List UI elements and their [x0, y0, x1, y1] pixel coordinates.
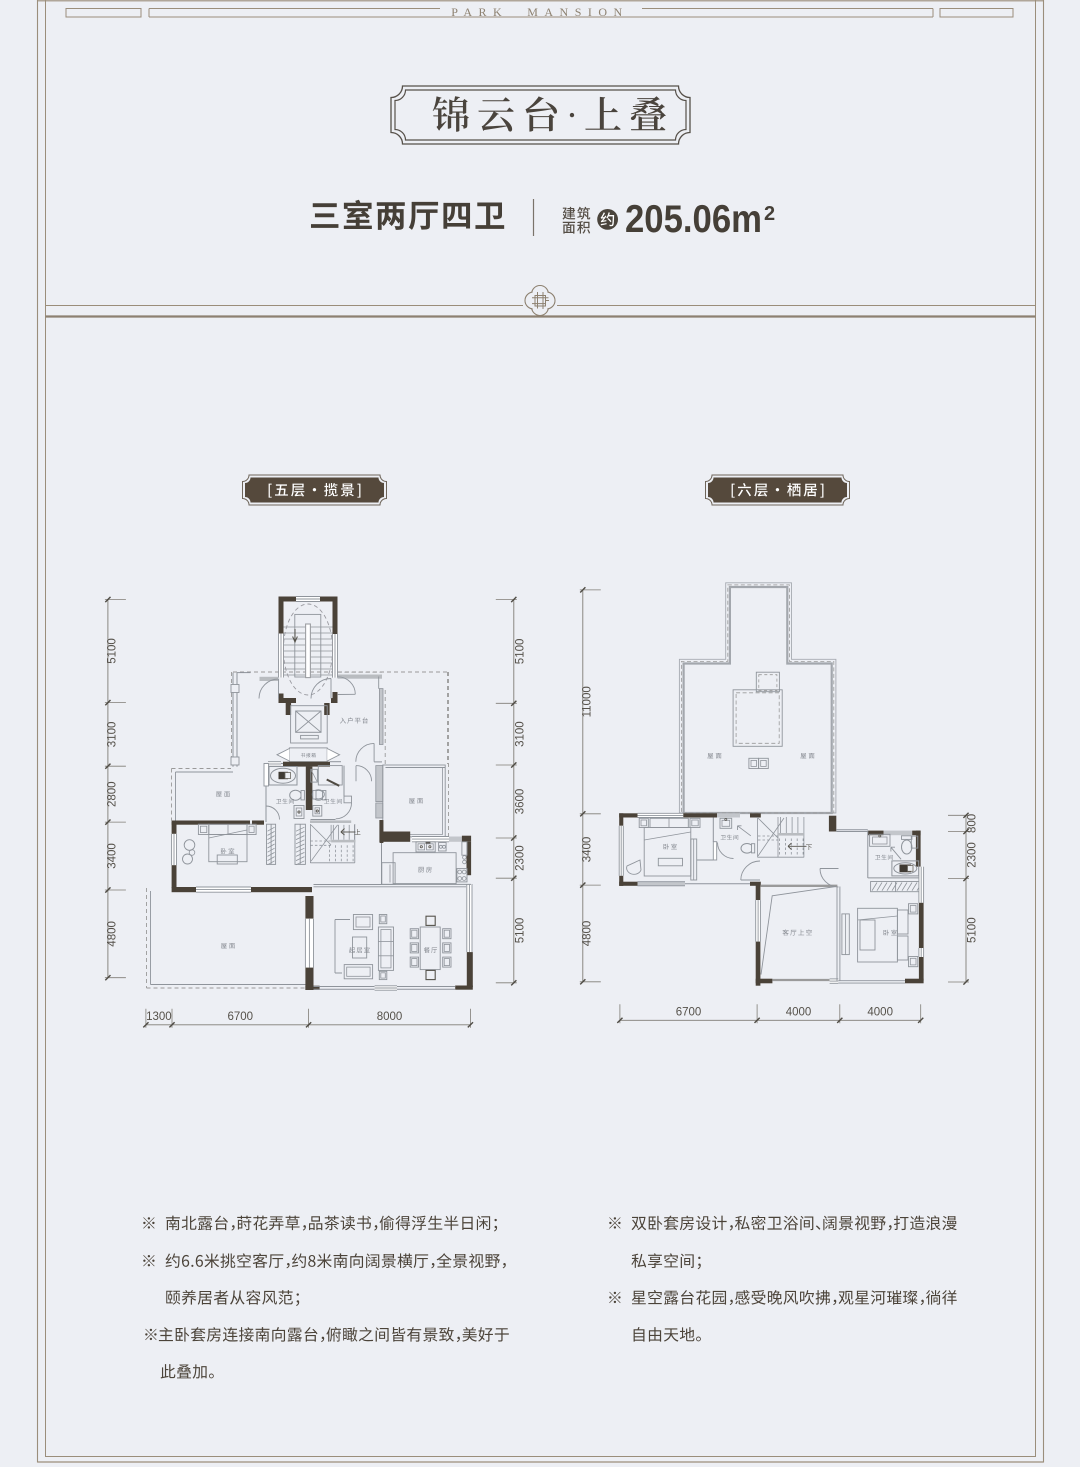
svg-text:5100: 5100	[967, 917, 979, 943]
svg-text:6700: 6700	[228, 1011, 254, 1023]
svg-text:3100: 3100	[106, 722, 118, 748]
svg-text:4800: 4800	[581, 921, 593, 947]
svg-text:2300: 2300	[514, 845, 526, 871]
svg-text:PARK MANSION: PARK MANSION	[451, 5, 628, 19]
svg-text:5100: 5100	[514, 918, 526, 944]
svg-text:6700: 6700	[676, 1006, 702, 1018]
svg-text:8000: 8000	[377, 1011, 403, 1023]
svg-text:205.06m: 205.06m	[625, 198, 762, 241]
svg-text:4000: 4000	[786, 1006, 812, 1018]
svg-text:2800: 2800	[106, 781, 118, 807]
svg-text:3100: 3100	[514, 721, 526, 747]
svg-text:3400: 3400	[106, 843, 118, 869]
svg-text:1300: 1300	[146, 1011, 172, 1023]
svg-text:2: 2	[764, 203, 775, 225]
svg-text:4800: 4800	[106, 921, 118, 947]
svg-text:5100: 5100	[514, 639, 526, 665]
svg-text:3400: 3400	[581, 837, 593, 863]
svg-text:2300: 2300	[967, 842, 979, 868]
svg-text:3600: 3600	[514, 789, 526, 815]
svg-text:5100: 5100	[106, 638, 118, 664]
svg-text:800: 800	[967, 814, 979, 833]
svg-text:4000: 4000	[867, 1006, 893, 1018]
svg-text:11000: 11000	[581, 686, 593, 717]
